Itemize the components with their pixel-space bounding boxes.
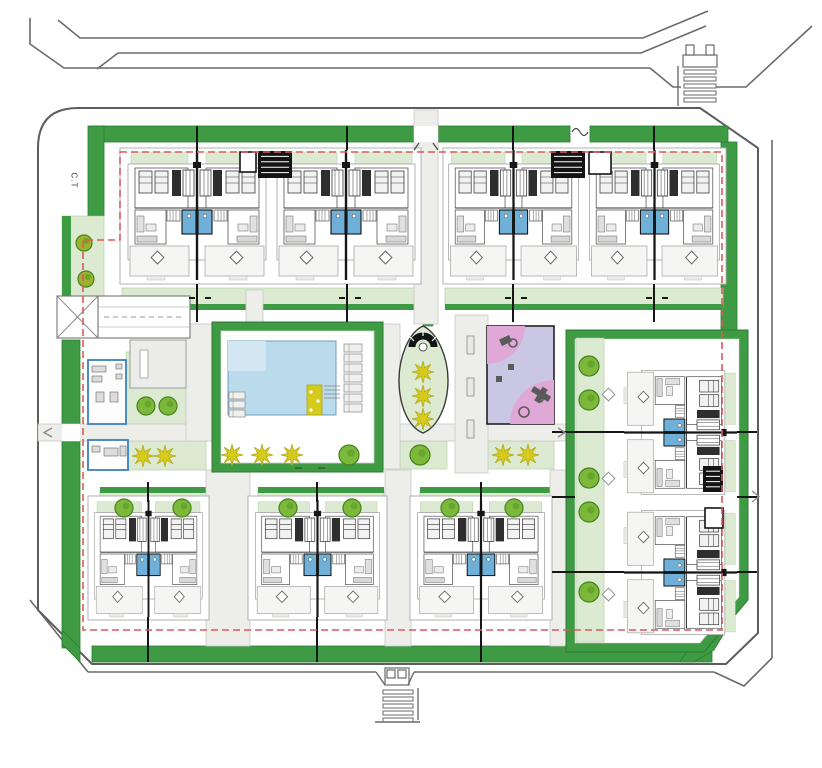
furniture (92, 446, 100, 452)
road-line (716, 26, 812, 87)
facility-building (130, 340, 186, 388)
entrance-gate (706, 45, 714, 55)
site-plan-drawing (0, 0, 822, 768)
furniture (92, 366, 106, 372)
hedge-edge (258, 487, 384, 493)
tree-crown-shade (347, 449, 355, 457)
hedge-edge (62, 216, 71, 296)
walkway (206, 470, 250, 646)
unit-pair (95, 500, 203, 617)
flower-bed (412, 361, 434, 383)
stair-core (551, 151, 585, 178)
entrance-gate (683, 55, 717, 67)
tree-crown-shade (85, 274, 91, 280)
stair-core (258, 151, 292, 178)
hedge-gap (62, 424, 80, 441)
sun-lounger (344, 384, 362, 392)
tree-crown-shade (587, 586, 595, 594)
flower-bed (412, 408, 434, 430)
play-equipment (508, 364, 514, 370)
bench (467, 420, 474, 438)
hedge-edge (100, 487, 206, 493)
entrance-stair-step (684, 70, 716, 74)
elevator-core (240, 152, 256, 172)
furniture (92, 376, 102, 382)
tree-crown-shade (83, 238, 89, 244)
pool-steps (307, 385, 322, 415)
stair-core (703, 466, 723, 492)
entrance-stair-step (684, 77, 716, 81)
road-line (58, 11, 708, 38)
walkway (246, 290, 263, 324)
furniture (116, 374, 122, 379)
pool-step-dot (316, 399, 319, 402)
sun-lounger (229, 410, 245, 417)
hedge-band (438, 126, 570, 142)
flower-bed (221, 444, 243, 466)
elevator-core (705, 508, 723, 528)
flower-bed (517, 444, 539, 466)
tree-crown-shade (513, 503, 520, 510)
sun-lounger (344, 344, 362, 352)
flower-bed (132, 445, 154, 467)
tree-crown-shade (123, 503, 130, 510)
furniture (116, 364, 122, 369)
sun-lounger (344, 394, 362, 402)
hedge-band (62, 340, 80, 648)
entrance-stair-step (383, 697, 413, 701)
tree-crown-shade (287, 503, 294, 510)
tree-crown-shade (181, 503, 188, 510)
tree-crown-shade (418, 449, 426, 457)
entrance-gate (686, 45, 694, 55)
furniture (104, 448, 118, 456)
unit-pair (255, 500, 379, 617)
sun-lounger (344, 374, 362, 382)
tree-crown-shade (145, 401, 152, 408)
sun-lounger (229, 392, 245, 399)
hedge-edge (420, 487, 550, 493)
tree-crown-shade (167, 401, 174, 408)
flower-bed (154, 445, 176, 467)
sun-lounger (344, 354, 362, 362)
pool-step-dot (309, 408, 312, 411)
hedge-band (92, 126, 414, 142)
entrance-stair-step (684, 91, 716, 95)
entrance-gate (398, 670, 406, 678)
entrance-stair-step (383, 711, 413, 715)
sun-lounger (229, 401, 245, 408)
hedge-band (88, 126, 104, 216)
unit-pair (624, 510, 737, 634)
flower-bed (281, 444, 303, 466)
ct-label: C.T (69, 173, 78, 189)
tree-crown-shade (351, 503, 358, 510)
entrance-stair-step (684, 84, 716, 88)
entrance-stair-step (684, 98, 716, 102)
pool-shallow-zone (228, 341, 266, 371)
walkway (385, 470, 411, 646)
tree-crown-shade (587, 506, 595, 514)
play-equipment (496, 376, 502, 382)
furniture (120, 446, 126, 456)
tree-crown-shade (449, 503, 456, 510)
road-line (97, 26, 706, 69)
hedge-edge (445, 304, 723, 310)
entrance-stair-step (383, 704, 413, 708)
flower-bed (251, 444, 273, 466)
bench (467, 378, 474, 396)
walkway (383, 324, 400, 469)
tree-crown-shade (587, 360, 595, 368)
bench (467, 336, 474, 354)
entrance-gate (387, 670, 395, 678)
unit-pair (418, 500, 545, 617)
pool-step-dot (309, 390, 312, 393)
unit-pair (277, 150, 415, 280)
furniture (110, 392, 118, 402)
flower-bed (492, 444, 514, 466)
walkway (186, 324, 212, 441)
flower-bed (412, 385, 434, 407)
tree-crown-shade (587, 472, 595, 480)
site-plan-page: C.T (0, 0, 822, 768)
hedge-band (590, 126, 728, 142)
elevator-core (589, 152, 611, 174)
furniture (96, 392, 104, 402)
sun-lounger (344, 364, 362, 372)
entrance-stair-step (383, 690, 413, 694)
tree-crown-shade (587, 394, 595, 402)
hedge-gap (414, 126, 438, 142)
island-stair-hub (419, 343, 427, 351)
sun-lounger (344, 404, 362, 412)
facility-skylight (140, 350, 148, 378)
